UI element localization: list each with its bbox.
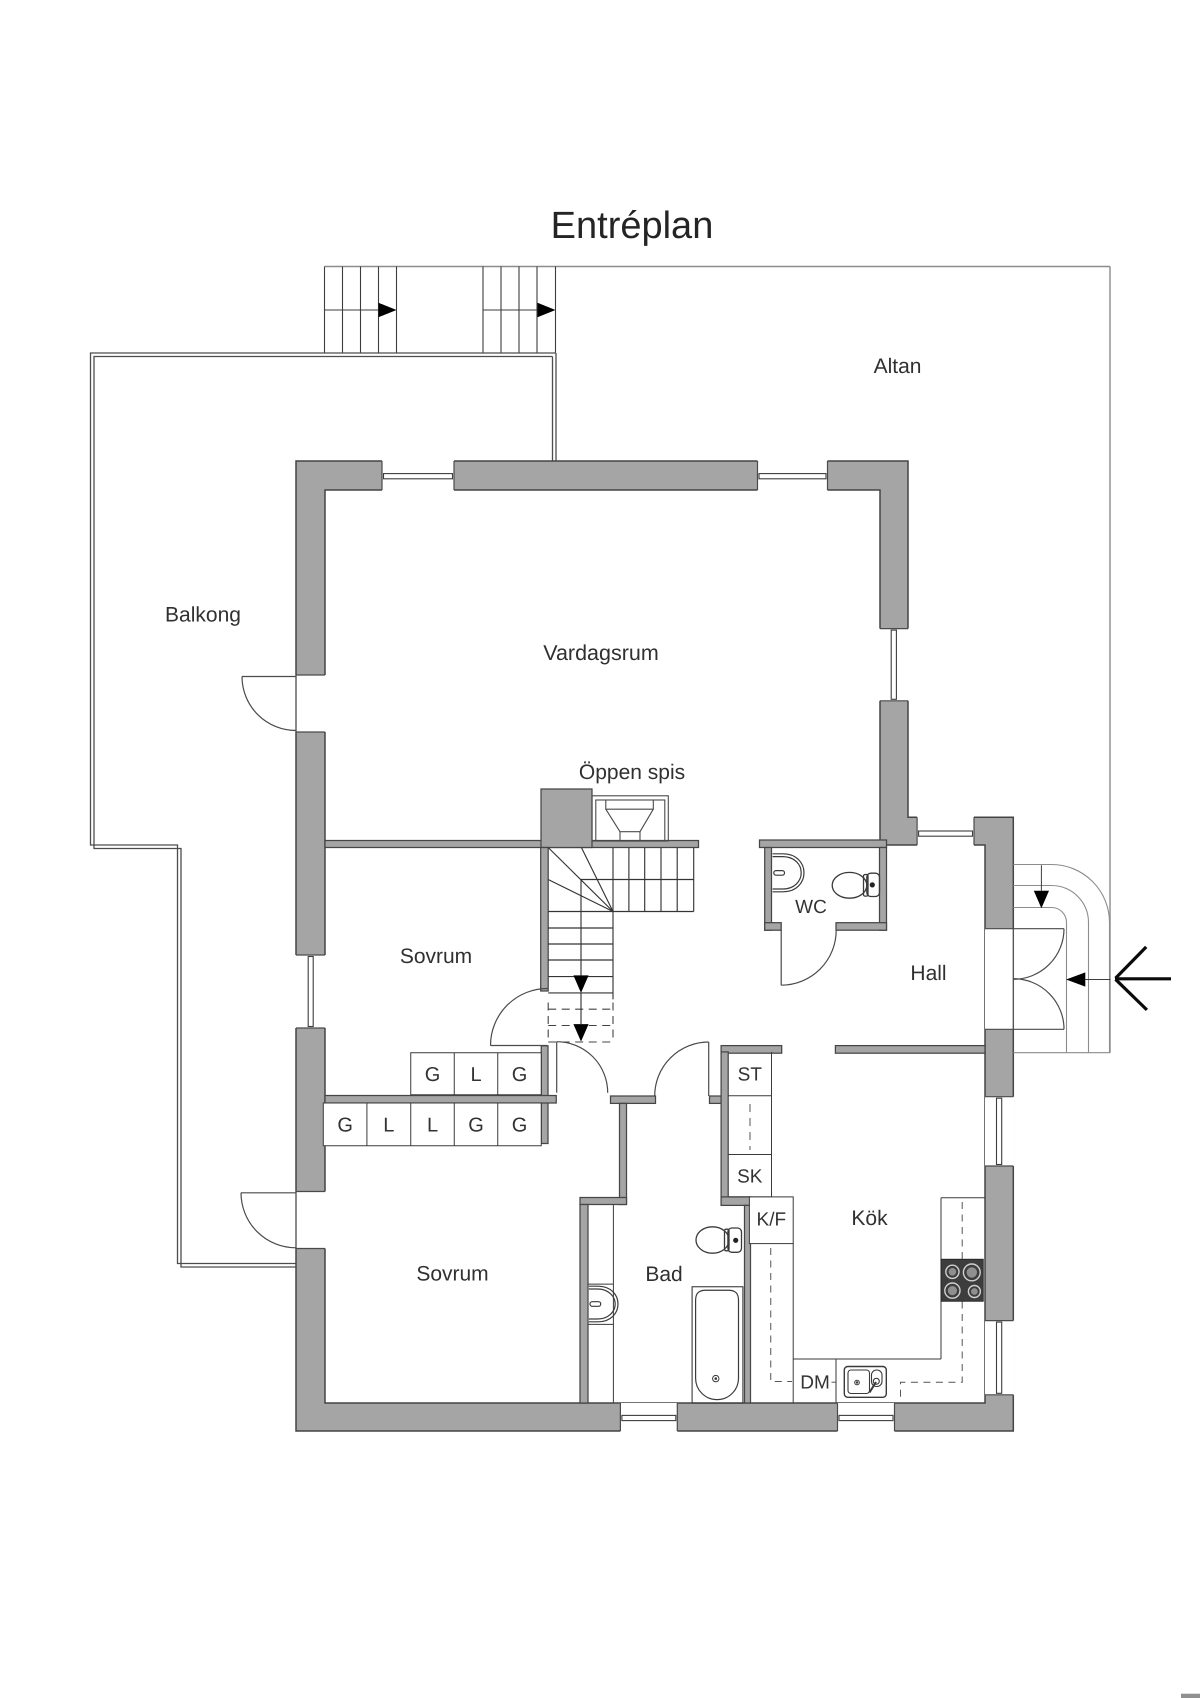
svg-text:L: L <box>470 1064 481 1086</box>
svg-text:Altan: Altan <box>874 355 922 378</box>
svg-text:Hall: Hall <box>910 962 946 985</box>
svg-text:WC: WC <box>795 897 827 918</box>
svg-text:L: L <box>427 1115 438 1137</box>
svg-text:Balkong: Balkong <box>165 604 241 627</box>
svg-text:Sovrum: Sovrum <box>416 1263 488 1286</box>
svg-text:ST: ST <box>738 1065 763 1086</box>
svg-text:Kök: Kök <box>851 1207 888 1230</box>
svg-text:SK: SK <box>737 1167 763 1188</box>
svg-text:G: G <box>512 1115 528 1137</box>
svg-text:G: G <box>337 1115 353 1137</box>
svg-text:L: L <box>383 1115 394 1137</box>
svg-text:G: G <box>512 1064 528 1086</box>
svg-text:Sovrum: Sovrum <box>400 945 472 968</box>
svg-text:Entréplan: Entréplan <box>551 205 714 247</box>
svg-text:DM: DM <box>800 1373 830 1394</box>
svg-text:Vardagsrum: Vardagsrum <box>543 641 659 665</box>
svg-text:Bad: Bad <box>645 1263 682 1286</box>
svg-text:K/F: K/F <box>757 1210 787 1231</box>
svg-text:Öppen spis: Öppen spis <box>579 761 685 784</box>
svg-text:G: G <box>468 1115 484 1137</box>
svg-text:G: G <box>425 1064 441 1086</box>
